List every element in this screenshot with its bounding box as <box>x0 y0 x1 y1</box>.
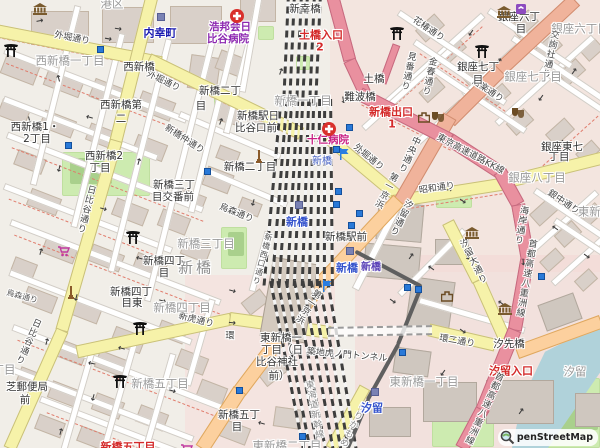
oneway-arrow: → <box>114 25 123 35</box>
station-marker <box>346 247 354 255</box>
name-label: 目 <box>196 101 207 112</box>
place-label: 港区 <box>101 0 124 10</box>
place-label: 東新橋一丁目 <box>390 376 459 388</box>
name-label: 目 <box>473 75 484 86</box>
name-label: 比谷神社 <box>256 357 298 368</box>
name-label: 丁目（日 <box>261 345 303 356</box>
oneway-arrow: → <box>37 247 48 257</box>
name-label: 銀座七丁 <box>457 62 499 73</box>
place-label: 東新橋 <box>578 206 600 218</box>
name-label: 前 <box>20 395 31 406</box>
name-label: 西新橋 <box>123 62 155 73</box>
hospital-label: 比谷病院 <box>207 34 249 45</box>
place-label: 汐留 <box>564 366 587 378</box>
attribution[interactable]: penStreetMap <box>498 429 598 446</box>
name-label: 芝郵便局 <box>6 382 48 393</box>
highway-exit-label: 新橋五丁目 <box>101 442 156 448</box>
oneway-arrow: → <box>247 197 258 207</box>
hospital-label: 浩邦会日 <box>209 22 251 33</box>
attribution-text: penStreetMap <box>517 432 593 443</box>
oneway-arrow: → <box>35 17 44 27</box>
place-label: 銀座七丁目 <box>504 71 562 83</box>
oneway-arrow: → <box>43 337 54 347</box>
station-label: 新橋 <box>312 157 332 167</box>
place-label: 東新橋二丁目 <box>253 440 322 448</box>
map-canvas[interactable]: penStreetMap →→→→→→→→→→→→→→→→→→→→→→→→→→→… <box>0 0 600 448</box>
name-label: 二 <box>116 114 127 125</box>
name-label: 新橋四丁 <box>110 287 152 298</box>
place-label: 新橋五丁目 <box>131 378 189 390</box>
road-label: 日比谷通り <box>13 316 42 365</box>
oneway-arrow: → <box>98 205 108 216</box>
name-label: 新橋四丁 <box>143 256 185 267</box>
subway-entrance-marker <box>335 188 342 195</box>
place-label: 新橋三丁目 <box>177 238 235 250</box>
name-label: 目東 <box>122 298 143 309</box>
subway-entrance-marker <box>333 201 340 208</box>
name-label: 新橋駅前 <box>325 232 367 243</box>
name-label: 西新橋2 <box>85 151 123 162</box>
name-label: 西新橋第 <box>100 100 142 111</box>
name-label: 新橋二丁 <box>199 86 241 97</box>
highway-exit-label: 土橋入口 <box>299 30 343 41</box>
oneway-arrow: → <box>104 35 113 45</box>
subway-entrance-marker <box>415 286 422 293</box>
subway-entrance-marker <box>356 210 363 217</box>
name-label: 新橋駅日 <box>237 111 279 122</box>
name-label: 目 <box>159 268 170 279</box>
oneway-arrow: → <box>228 319 236 329</box>
name-label: 新橋三丁 <box>153 180 195 191</box>
oneway-arrow: → <box>117 342 127 353</box>
station-label: 新橋 <box>286 217 308 228</box>
highway-exit-label: 1 <box>388 119 396 130</box>
name-label: 2丁目 <box>23 134 51 145</box>
name-label: 土橋 <box>364 74 385 85</box>
tunnel-road <box>328 325 432 337</box>
osm-logo-icon <box>500 430 515 445</box>
name-label: 目 <box>516 24 527 35</box>
name-label: 新橋五丁 <box>218 410 260 421</box>
subway-entrance-marker <box>346 124 353 131</box>
oneway-arrow: → <box>85 111 95 122</box>
name-label: 目交番前 <box>152 192 194 203</box>
place-label: 丁目 <box>0 364 16 376</box>
place-label: 新橋四丁目 <box>153 302 211 314</box>
subway-entrance-marker <box>404 284 411 291</box>
place-label: 新橋一丁目 <box>274 95 332 107</box>
subway-entrance-marker <box>538 273 545 280</box>
name-label: 汐先橋 <box>493 339 525 350</box>
railway-track <box>315 98 320 285</box>
name-label: 目 <box>232 422 243 433</box>
name-label: 比谷口前 <box>235 123 277 134</box>
station-label: 内幸町 <box>144 28 177 39</box>
subway-entrance-marker <box>399 349 406 356</box>
road-label: 環 <box>225 333 234 342</box>
oneway-arrow: → <box>53 163 64 173</box>
name-label: 東新橋一 <box>260 333 302 344</box>
subway-entrance-marker <box>204 168 211 175</box>
highway-exit-label: 2 <box>316 42 324 53</box>
hospital-label: 十仁病院 <box>307 135 349 146</box>
name-label: 新幸橋 <box>289 4 321 15</box>
subway-entrance-marker <box>348 222 355 229</box>
building <box>575 393 600 427</box>
park-area <box>258 26 274 40</box>
highway-exit-label: 新橋出口 <box>369 107 413 118</box>
station-label: 汐留 <box>361 403 383 414</box>
oneway-arrow: → <box>227 287 237 298</box>
name-label: 新橋二丁目 <box>224 162 277 173</box>
name-label: 西新橋1・ <box>11 122 60 133</box>
subway-entrance-marker <box>97 46 104 53</box>
oneway-arrow: → <box>87 392 98 402</box>
place-label: 銀座八丁目 <box>508 172 566 184</box>
name-label: 前） <box>269 371 290 382</box>
place-label: 西新橋一丁目 <box>36 55 105 67</box>
station-label: 新橋 <box>336 263 358 274</box>
name-label: 難波橋 <box>344 92 376 103</box>
name-label: 丁目 <box>90 163 111 174</box>
station-label: 新橋 <box>361 263 381 273</box>
station-marker <box>371 388 379 396</box>
station-marker <box>157 13 165 21</box>
subway-entrance-marker <box>65 142 72 149</box>
station-marker <box>295 201 303 209</box>
name-label: 丁目 <box>549 152 570 163</box>
subway-entrance-marker <box>236 387 243 394</box>
